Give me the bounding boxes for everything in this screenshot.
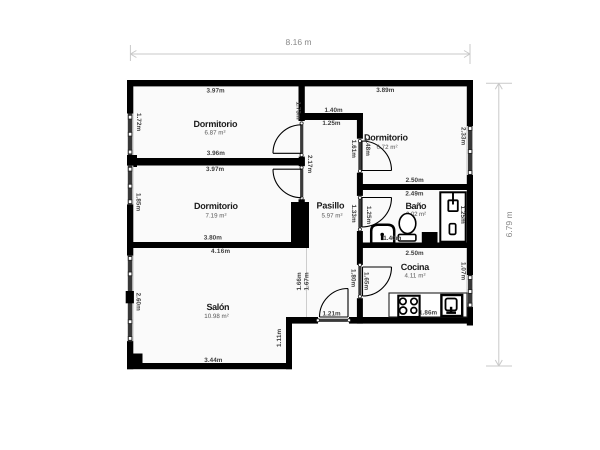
- svg-text:8.16 m: 8.16 m: [286, 37, 312, 47]
- svg-text:Pasillo: Pasillo: [317, 200, 346, 210]
- svg-text:1.07m: 1.07m: [460, 262, 467, 281]
- svg-text:2.49m: 2.49m: [405, 191, 424, 198]
- svg-text:3.44m: 3.44m: [204, 357, 223, 364]
- svg-text:6.72 m²: 6.72 m²: [377, 144, 398, 151]
- svg-text:2.50m: 2.50m: [406, 177, 425, 184]
- svg-text:2.50m: 2.50m: [406, 250, 425, 257]
- svg-text:1.40m: 1.40m: [383, 235, 402, 242]
- svg-text:6.79 m: 6.79 m: [504, 211, 514, 237]
- svg-text:Salón: Salón: [207, 302, 230, 312]
- svg-text:1.25m: 1.25m: [365, 206, 372, 225]
- svg-text:1.21m: 1.21m: [323, 310, 342, 317]
- svg-text:2.33m: 2.33m: [460, 127, 467, 146]
- svg-text:Dormitorio: Dormitorio: [194, 119, 239, 129]
- svg-text:4.16m: 4.16m: [211, 248, 231, 255]
- svg-text:3.97m: 3.97m: [206, 166, 225, 173]
- svg-text:1.66m: 1.66m: [296, 272, 303, 291]
- svg-text:1.73m: 1.73m: [294, 102, 301, 121]
- svg-text:1.86m: 1.86m: [419, 310, 438, 317]
- svg-text:1.11m: 1.11m: [276, 329, 283, 348]
- svg-text:1.25m: 1.25m: [322, 120, 341, 127]
- svg-text:4.11 m²: 4.11 m²: [405, 272, 426, 279]
- svg-text:1.48m: 1.48m: [364, 138, 371, 157]
- svg-text:1.61m: 1.61m: [350, 140, 357, 159]
- svg-text:2.17m: 2.17m: [306, 155, 313, 174]
- svg-text:2.60m: 2.60m: [135, 293, 142, 312]
- svg-text:3.89m: 3.89m: [376, 87, 395, 94]
- svg-text:Baño: Baño: [406, 201, 428, 211]
- svg-text:1.80m: 1.80m: [350, 269, 357, 288]
- svg-text:1.33m: 1.33m: [350, 205, 357, 224]
- svg-text:3.80m: 3.80m: [204, 235, 223, 242]
- svg-text:1.85m: 1.85m: [135, 193, 142, 212]
- svg-text:7.19 m²: 7.19 m²: [206, 213, 227, 220]
- svg-text:1.25m: 1.25m: [459, 206, 466, 225]
- svg-text:3.97m: 3.97m: [207, 88, 226, 95]
- svg-text:1.65m: 1.65m: [363, 272, 370, 291]
- svg-text:1.40m: 1.40m: [325, 107, 344, 114]
- svg-text:Dormitorio: Dormitorio: [194, 201, 239, 211]
- svg-text:10.98 m²: 10.98 m²: [204, 313, 229, 320]
- svg-text:5.97 m²: 5.97 m²: [322, 213, 343, 220]
- svg-text:3.96m: 3.96m: [207, 150, 226, 157]
- svg-text:1.67m: 1.67m: [304, 272, 311, 291]
- svg-text:Cocina: Cocina: [401, 262, 430, 272]
- svg-text:6.87 m²: 6.87 m²: [205, 129, 226, 136]
- svg-text:1.72m: 1.72m: [135, 113, 142, 132]
